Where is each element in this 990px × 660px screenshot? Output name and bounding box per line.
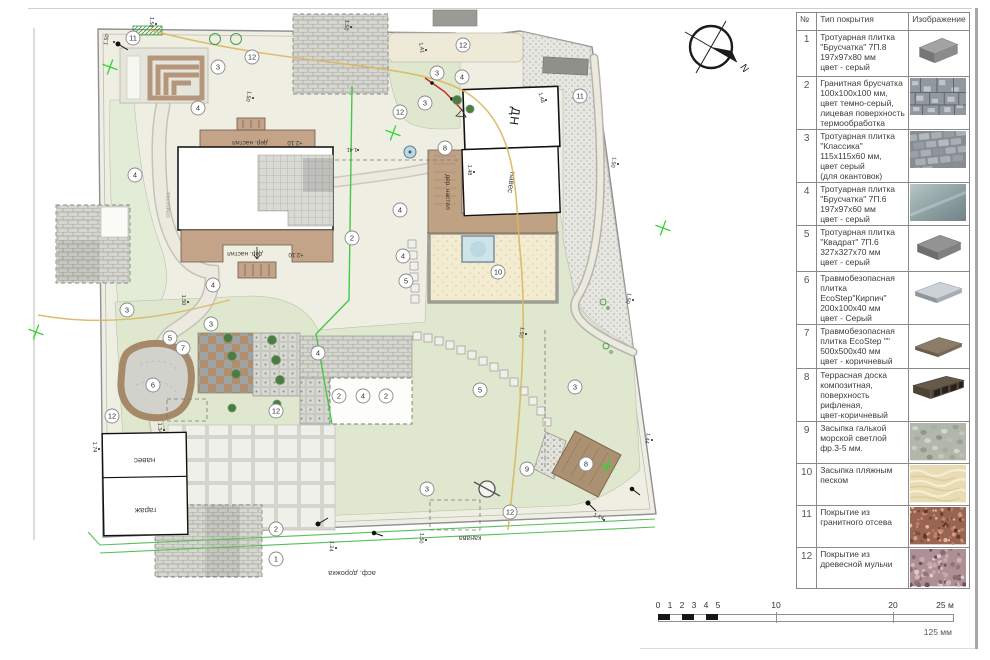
- svg-text:1: 1: [274, 555, 278, 564]
- legend-row-number: 1: [797, 31, 817, 77]
- svg-text:5: 5: [478, 386, 482, 395]
- plan-marker: 8: [579, 457, 593, 471]
- dimension-label: 1.74: [91, 442, 97, 453]
- plan-marker: 4: [393, 203, 407, 217]
- survey-cross: [653, 218, 674, 239]
- dimension-label: 1.50: [609, 156, 617, 168]
- material-swatch-granite: [910, 78, 966, 115]
- legend-row-image: [909, 369, 970, 422]
- label-level-bottom: +2.10: [288, 251, 304, 257]
- legend-row: 11Покрытие из гранитного отсева: [797, 506, 970, 548]
- scale-bar-tick: [776, 612, 777, 623]
- legend-row-description: Травмобезопасная плитка EcoStep"Кирпич" …: [817, 272, 909, 325]
- scale-tick: 25 м: [936, 600, 954, 610]
- survey-cross: [26, 322, 47, 343]
- plan-marker: 4: [455, 70, 469, 84]
- material-swatch-mulch: [910, 549, 966, 586]
- plan-marker: 12: [269, 404, 283, 418]
- label-deck-top: дер. настил: [232, 139, 268, 146]
- plan-marker: 3: [420, 482, 434, 496]
- plan-marker: 2: [345, 231, 359, 245]
- svg-text:11: 11: [129, 34, 137, 43]
- plan-marker: 11: [126, 31, 140, 45]
- material-swatch-deck: [910, 370, 966, 407]
- label-road: асф. дорожка: [327, 569, 376, 578]
- legend-row-description: Тротуарная плитка "Брусчатка" 7П.8 197х9…: [817, 31, 909, 77]
- legend-row-number: 3: [797, 130, 817, 183]
- plan-marker: 2: [332, 389, 346, 403]
- dimension-label: 1.50: [180, 295, 186, 306]
- legend-row: 6Травмобезопасная плитка EcoStep"Кирпич"…: [797, 272, 970, 325]
- svg-text:10: 10: [494, 268, 502, 277]
- plan-marker: 8: [438, 141, 452, 155]
- svg-text:8: 8: [443, 144, 447, 153]
- garage-block: навес гараж: [102, 432, 188, 535]
- material-swatch-brick3d: [910, 32, 966, 69]
- legend-row-image: [909, 183, 970, 226]
- legend-row: 5Тротуарная плитка "Квадрат" 7П.6 327х32…: [797, 226, 970, 272]
- plan-marker: 4: [206, 278, 220, 292]
- plan-marker: 11: [573, 89, 587, 103]
- svg-text:4: 4: [133, 171, 137, 180]
- plan-marker: 12: [503, 505, 517, 519]
- plan-marker: 2: [379, 389, 393, 403]
- label-naves-garage: навес: [134, 456, 156, 465]
- legend-row-image: [909, 226, 970, 272]
- legend-row-image: [909, 325, 970, 369]
- plan-marker: 9: [520, 462, 534, 476]
- dimension-label: 1.50: [418, 532, 425, 543]
- svg-text:6: 6: [151, 381, 155, 390]
- legend-row-number: 10: [797, 464, 817, 506]
- legend-row-image: [909, 506, 970, 548]
- dimension-label: 1.50: [343, 19, 350, 30]
- legend-row: 2Гранитная брусчатка 100х100х100 мм, цве…: [797, 77, 970, 130]
- legend-row: 1Тротуарная плитка "Брусчатка" 7П.8 197х…: [797, 31, 970, 77]
- svg-text:2: 2: [350, 234, 354, 243]
- svg-text:4: 4: [316, 349, 320, 358]
- legend-row-number: 8: [797, 369, 817, 422]
- label-level-top: +2.10: [287, 139, 303, 145]
- svg-text:4: 4: [401, 252, 405, 261]
- legend-row-image: [909, 422, 970, 464]
- legend-row-number: 11: [797, 506, 817, 548]
- legend-header-image: Изображение: [909, 13, 970, 31]
- svg-text:11: 11: [576, 92, 584, 101]
- guest-house: ДН навес: [460, 86, 562, 215]
- svg-text:4: 4: [398, 206, 402, 215]
- svg-text:5: 5: [404, 277, 408, 286]
- svg-text:3: 3: [209, 320, 213, 329]
- plan-marker: 3: [120, 303, 134, 317]
- svg-text:4: 4: [460, 73, 464, 82]
- scale-bar-segment: [706, 614, 718, 620]
- legend-row: 10Засыпка пляжным песком: [797, 464, 970, 506]
- svg-text:12: 12: [272, 407, 280, 416]
- legend-row: 12Покрытие из древесной мульчи: [797, 548, 970, 588]
- svg-text:12: 12: [396, 108, 404, 117]
- plan-marker: 6: [146, 378, 160, 392]
- legend-row: 7Травмобезопасная плитка EcoStep "" 500х…: [797, 325, 970, 369]
- plan-marker: 3: [430, 66, 444, 80]
- plan-marker: 4: [311, 346, 325, 360]
- scale-tick: 0: [656, 600, 661, 610]
- plan-marker: 1: [269, 552, 283, 566]
- legend-row-number: 9: [797, 422, 817, 464]
- legend-row-image: [909, 130, 970, 183]
- svg-text:9: 9: [525, 465, 529, 474]
- svg-text:4: 4: [196, 104, 200, 113]
- scale-caption: 125 мм: [890, 627, 952, 637]
- legend-row-image: [909, 77, 970, 130]
- scale-tick: 5: [716, 600, 721, 610]
- hatched-roof-building: [293, 14, 388, 94]
- legend-row-image: [909, 464, 970, 506]
- legend-row-image: [909, 31, 970, 77]
- svg-text:12: 12: [506, 508, 514, 517]
- legend-row: 9Засыпка галькой морской светлой фр.3-5 …: [797, 422, 970, 464]
- grey-structure-top: [433, 10, 477, 26]
- dimension-label: 1.48: [466, 165, 472, 176]
- dimension-label: 1.34: [156, 423, 162, 434]
- plan-marker: 5: [163, 331, 177, 345]
- material-swatch-ecostep_grey: [910, 273, 966, 310]
- material-swatch-slab3d: [910, 227, 966, 264]
- legend-row-description: Засыпка пляжным песком: [817, 464, 909, 506]
- material-swatch-tile: [910, 184, 966, 221]
- label-otmostka: отмостка: [166, 192, 172, 218]
- coverage-legend-table: № Тип покрытия Изображение 1Тротуарная п…: [796, 12, 970, 589]
- scale-tick: 2: [680, 600, 685, 610]
- drawing-page: дер. настил +2.10 дер. настил +2.10 отмо…: [0, 0, 990, 660]
- svg-text:3: 3: [573, 383, 577, 392]
- scale-bar-segment: [658, 614, 670, 620]
- legend-row-number: 6: [797, 272, 817, 325]
- svg-text:12: 12: [459, 41, 467, 50]
- svg-text:2: 2: [337, 392, 341, 401]
- scale-tick: 10: [771, 600, 780, 610]
- svg-text:12: 12: [248, 53, 256, 62]
- legend-row-description: Засыпка галькой морской светлой фр.3-5 м…: [817, 422, 909, 464]
- svg-text:3: 3: [425, 485, 429, 494]
- mulch-strip: [388, 33, 523, 62]
- plan-marker: 3: [418, 96, 432, 110]
- svg-text:3: 3: [435, 69, 439, 78]
- legend-row-description: Покрытие из древесной мульчи: [817, 548, 909, 588]
- plan-marker: 12: [105, 409, 119, 423]
- legend-row-description: Травмобезопасная плитка EcoStep "" 500х5…: [817, 325, 909, 369]
- grey-structure-right: [543, 57, 589, 75]
- plan-marker: 3: [211, 60, 225, 74]
- svg-text:2: 2: [274, 525, 278, 534]
- scale-tick: 20: [888, 600, 897, 610]
- plan-marker: 3: [568, 380, 582, 394]
- entrance-apron-left: [56, 205, 130, 283]
- spiral-garden-feature: [120, 48, 208, 103]
- legend-row-image: [909, 548, 970, 588]
- svg-text:8: 8: [584, 460, 588, 469]
- plan-marker: 5: [473, 383, 487, 397]
- svg-text:3: 3: [216, 63, 220, 72]
- plan-marker: 3: [204, 317, 218, 331]
- svg-text:4: 4: [361, 392, 365, 401]
- svg-text:3: 3: [125, 306, 129, 315]
- legend-header-num: №: [797, 13, 817, 31]
- scale-bar-tick: [893, 612, 894, 623]
- plan-marker: 4: [128, 168, 142, 182]
- material-swatch-ecostep_brown: [910, 326, 966, 363]
- plan-marker: 12: [245, 50, 259, 64]
- svg-text:2: 2: [384, 392, 388, 401]
- plan-marker: 4: [356, 389, 370, 403]
- legend-row-number: 12: [797, 548, 817, 588]
- material-swatch-sand: [910, 465, 966, 502]
- dimension-label: 1.14: [328, 540, 335, 551]
- legend-row-description: Покрытие из гранитного отсева: [817, 506, 909, 548]
- plan-marker: 7: [176, 341, 190, 355]
- legend-header-row: № Тип покрытия Изображение: [797, 13, 970, 31]
- north-label: N: [737, 62, 750, 74]
- plan-marker: 2: [269, 522, 283, 536]
- scale-bar: 0 1 2 3 4 5 10 20 25 м 125 мм: [650, 600, 970, 644]
- label-deck-side: дер. настил: [444, 174, 451, 210]
- label-dn: ДН: [507, 106, 523, 127]
- dimension-label: 1.41: [347, 146, 358, 152]
- plan-marker: 4: [191, 101, 205, 115]
- svg-text:7: 7: [181, 344, 185, 353]
- dimension-label: 1.50: [148, 16, 155, 27]
- svg-text:5: 5: [168, 334, 172, 343]
- legend-row-description: Террасная доска композитная, поверхность…: [817, 369, 909, 422]
- plan-marker: 10: [491, 265, 505, 279]
- legend-row-number: 2: [797, 77, 817, 130]
- label-garage: гараж: [134, 506, 156, 515]
- material-swatch-granite_chips: [910, 507, 966, 544]
- label-ditch: канава: [459, 534, 482, 541]
- legend-row-description: Тротуарная плитка "Квадрат" 7П.6 327х327…: [817, 226, 909, 272]
- material-swatch-pebbles: [910, 423, 966, 460]
- material-swatch-pavers: [910, 131, 966, 168]
- scale-bar-segment: [682, 614, 694, 620]
- legend-row-description: Гранитная брусчатка 100х100х100 мм, цвет…: [817, 77, 909, 130]
- legend-row-description: Тротуарная плитка "Классика" 115х115х60 …: [817, 130, 909, 183]
- plan-marker: 12: [456, 38, 470, 52]
- svg-text:3: 3: [423, 99, 427, 108]
- plan-marker: 5: [399, 274, 413, 288]
- svg-text:12: 12: [108, 412, 116, 421]
- legend-row-image: [909, 272, 970, 325]
- scale-tick: 4: [704, 600, 709, 610]
- plan-marker: 4: [396, 249, 410, 263]
- legend-row-number: 4: [797, 183, 817, 226]
- legend-row: 4Тротуарная плитка "Брусчатка" 7П.6 197х…: [797, 183, 970, 226]
- legend-header-type: Тип покрытия: [817, 13, 909, 31]
- svg-text:4: 4: [211, 281, 215, 290]
- north-arrow: N: [685, 21, 751, 75]
- scale-tick: 1: [668, 600, 673, 610]
- scale-tick: 3: [692, 600, 697, 610]
- legend-row: 3Тротуарная плитка "Классика" 115х115х60…: [797, 130, 970, 183]
- label-deck-bottom: дер. настил: [227, 250, 263, 257]
- stairs-bottom: [238, 262, 276, 278]
- plan-marker: 12: [393, 105, 407, 119]
- legend-row-number: 7: [797, 325, 817, 369]
- legend-row: 8Террасная доска композитная, поверхност…: [797, 369, 970, 422]
- scale-bar-line: [658, 614, 954, 622]
- legend-row-number: 5: [797, 226, 817, 272]
- legend-row-description: Тротуарная плитка "Брусчатка" 7П.6 197х9…: [817, 183, 909, 226]
